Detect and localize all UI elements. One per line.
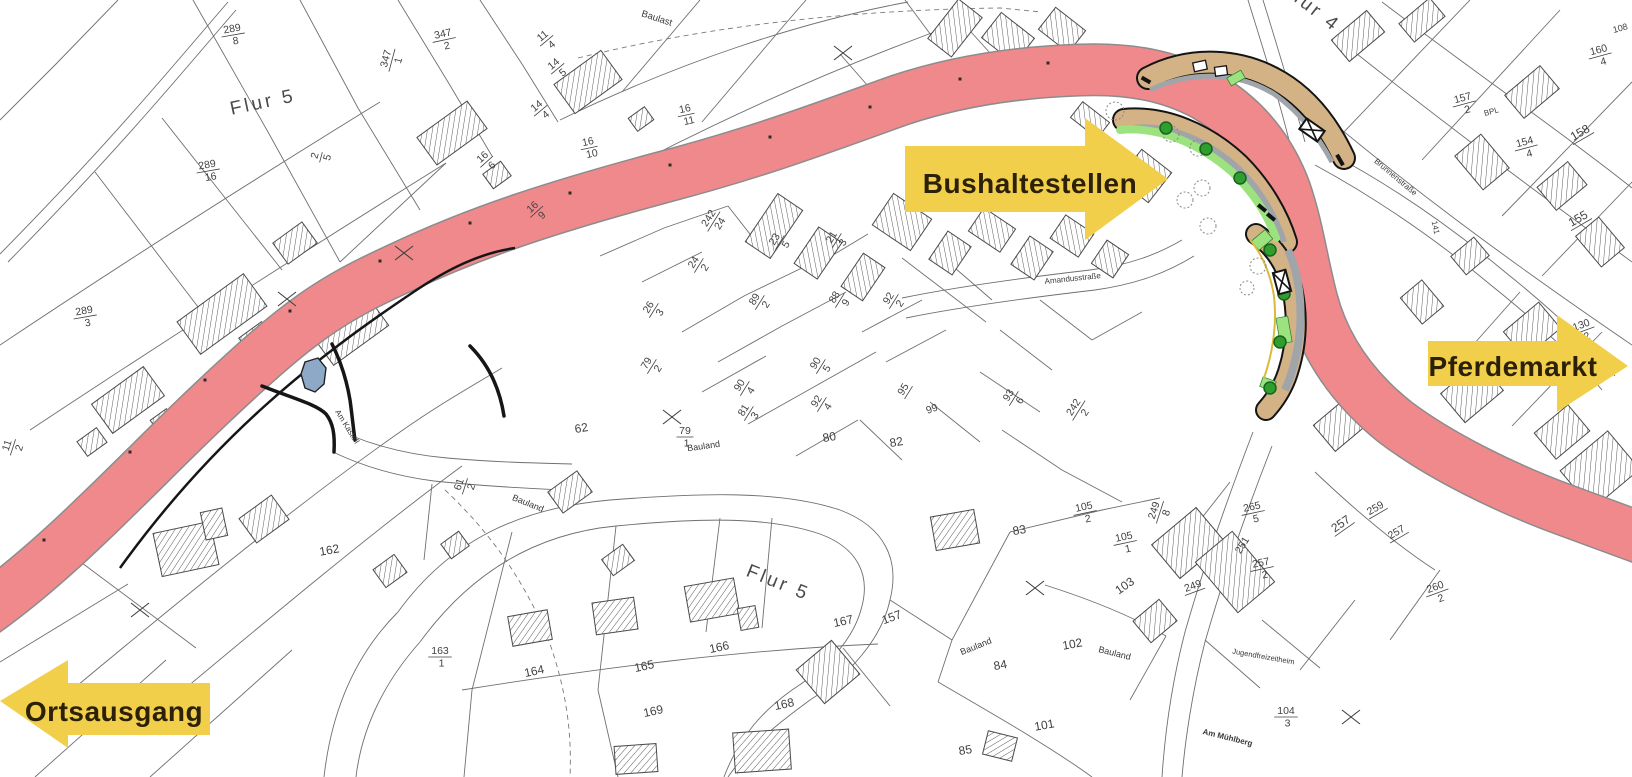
parcel-number: 163 [431,645,449,657]
parcel-denominator: 16 [204,170,218,184]
building [508,610,553,646]
boundary-point [669,164,672,167]
map-page: Flur 5Flur 5Flur 4AmandusstraßeBrunnenst… [0,0,1632,777]
parcel-number: 84 [993,657,1009,673]
boundary-point [469,222,472,225]
boundary-point [869,106,872,109]
boundary-point [769,136,772,139]
parcel-denominator: 1 [684,438,690,450]
planned-tree [1160,122,1172,134]
parcel-number: 85 [958,742,974,758]
planned-tree [1200,143,1212,155]
arrow-bushaltestellen-label: Bushaltestellen [923,168,1137,199]
boundary-point [379,260,382,263]
boundary-point [1047,62,1050,65]
parcel-number: 79 [679,425,691,437]
boundary-point [569,192,572,195]
building [733,729,792,773]
building [614,744,658,775]
planned-tree [1234,172,1246,184]
boundary-point [959,78,962,81]
bus-shelter [1193,60,1208,72]
building [737,606,759,631]
parcel-label: 62 [574,420,590,436]
planned-tree [1264,244,1276,256]
parcel-label: 84 [993,657,1009,673]
parcel-label: 85 [958,742,974,758]
boundary-point [289,310,292,313]
boundary-point [129,451,132,454]
parcel-label: 80 [822,429,838,445]
parcel-number: 62 [574,420,590,436]
arrow-pferdemarkt-label: Pferdemarkt [1429,351,1598,382]
planned-tree [1274,336,1286,348]
boundary-point [204,379,207,382]
parcel-label: 83 [1012,522,1028,538]
arrow-ortsausgang-label: Ortsausgang [25,696,203,727]
map-svg: Flur 5Flur 5Flur 4AmandusstraßeBrunnenst… [0,0,1632,777]
bus-shelter [1214,66,1227,77]
parcel-number: 82 [889,434,905,450]
parcel-denominator: 3 [1285,718,1291,730]
building [592,597,638,635]
parcel-label: 82 [889,434,905,450]
parcel-number: 83 [1012,522,1028,538]
parcel-denominator: 1 [439,658,445,670]
building [930,509,979,550]
parcel-number: 80 [822,429,838,445]
planned-tree [1264,382,1276,394]
parcel-number: 104 [1277,705,1295,717]
boundary-point [43,539,46,542]
